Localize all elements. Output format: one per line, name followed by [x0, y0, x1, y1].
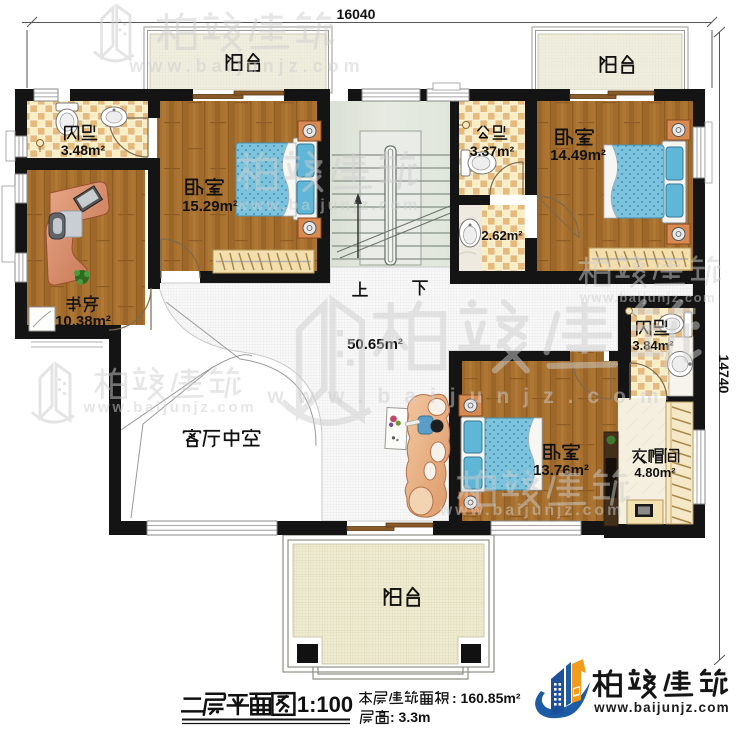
- svg-text:15.29m²: 15.29m²: [182, 198, 238, 215]
- svg-text:: 160.85m²: : 160.85m²: [452, 690, 521, 706]
- svg-text:14740: 14740: [716, 355, 732, 394]
- svg-text:www.baijunjz.com: www.baijunjz.com: [593, 700, 730, 715]
- svg-text:13.76m²: 13.76m²: [533, 462, 589, 479]
- svg-text:www.baijunjz.com: www.baijunjz.com: [83, 399, 257, 416]
- svg-text:3.48m²: 3.48m²: [61, 142, 106, 158]
- svg-text:www.baijunjz.com: www.baijunjz.com: [266, 385, 672, 408]
- svg-text:4.80m²: 4.80m²: [634, 465, 676, 480]
- svg-text:www.baijunjz.com: www.baijunjz.com: [439, 502, 625, 519]
- svg-text:1:100: 1:100: [297, 692, 353, 717]
- svg-text:www.baijunjz.com: www.baijunjz.com: [235, 197, 421, 214]
- svg-text:www.baijunjz.com: www.baijunjz.com: [579, 290, 716, 305]
- svg-text:2.62m²: 2.62m²: [481, 228, 523, 243]
- svg-text:3.37m²: 3.37m²: [470, 143, 515, 159]
- svg-text:10.38m²: 10.38m²: [55, 313, 111, 330]
- svg-text:16040: 16040: [337, 6, 376, 22]
- svg-text:14.49m²: 14.49m²: [550, 147, 606, 164]
- svg-text:: 3.3m: : 3.3m: [390, 709, 430, 725]
- svg-text:www.baijunjz.com: www.baijunjz.com: [128, 56, 364, 76]
